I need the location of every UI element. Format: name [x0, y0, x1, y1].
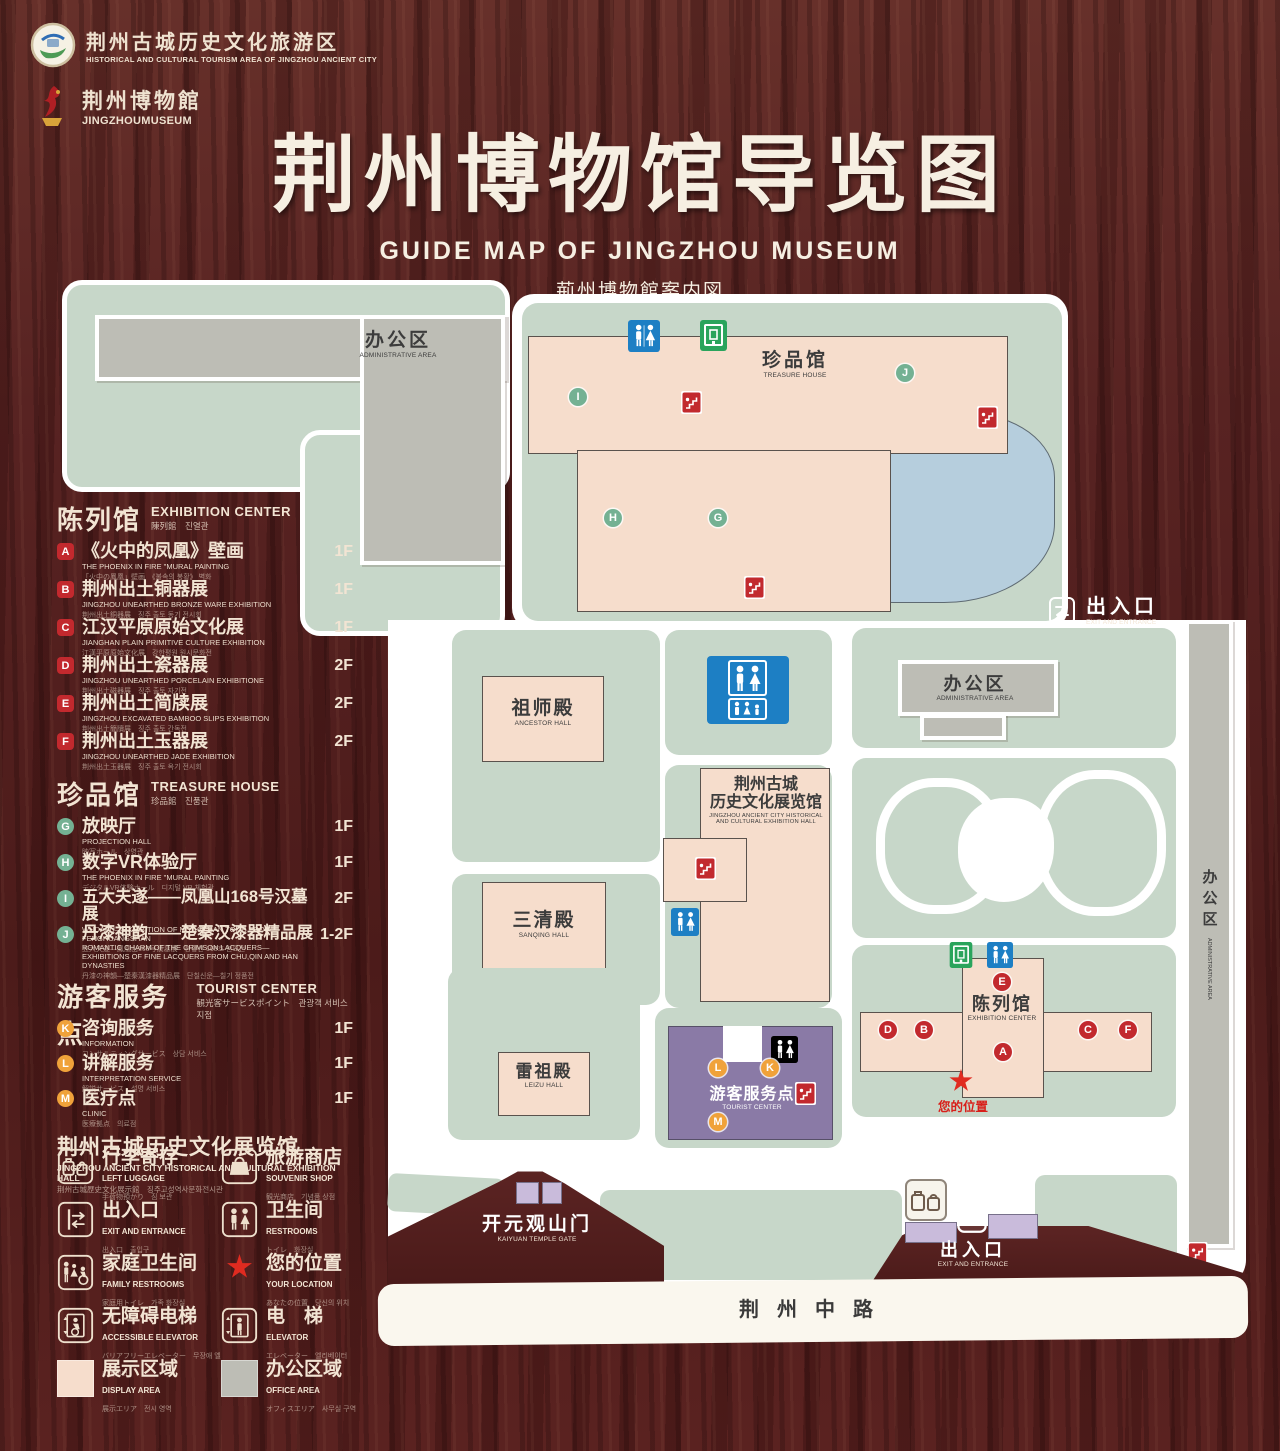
- item-cn: 荆州出土铜器展: [82, 580, 314, 599]
- item-en: THE PHOENIX IN FIRE "MURAL PAINTING: [82, 873, 314, 882]
- restroom-icon: [771, 1036, 798, 1063]
- left-luggage-icon: [57, 1148, 94, 1185]
- item-cn: 讲解服务: [82, 1054, 314, 1073]
- exit-entrance-icon: [57, 1201, 94, 1238]
- admin-area-strip-building: 办公区 ADMINISTRATIVE AREA: [1185, 620, 1233, 1248]
- item-cn: 荆州出土玉器展: [82, 732, 314, 751]
- item-sub: 荆州出土玉器展 징주 출토 옥기 전시회: [82, 762, 314, 772]
- section-tourist-center: 游客服务点 TOURIST CENTER 観光客サービスポイント 관광객 서비스…: [57, 977, 353, 1013]
- floor-badge: 1F: [334, 854, 353, 872]
- key-family-restrooms: 家庭卫生间FAMILY RESTROOMS家庭用トイレ 가족 화장실: [57, 1254, 221, 1294]
- list-item-A: A 《火中的凤凰》壁画THE PHOENIX IN FIRE "MURAL PA…: [57, 542, 353, 579]
- item-en: JIANGHAN PLAIN PRIMITIVE CULTURE EXHIBIT…: [82, 638, 314, 647]
- exit-icon: [948, 942, 974, 968]
- escalator-icon: [977, 406, 998, 429]
- item-cn: 数字VR体验厅: [82, 853, 314, 872]
- map-marker-A: A: [994, 1043, 1012, 1061]
- map-marker-G: G: [709, 509, 727, 527]
- floor-badge: 2F: [334, 733, 353, 751]
- list-item-I: I 五大夫遂——凤凰山168号汉墓展WUDAFU—EXHIBITION OF N…: [57, 889, 353, 924]
- item-cn: 《火中的凤凰》壁画: [82, 542, 314, 561]
- floor-badge: 1F: [334, 619, 353, 637]
- accessible-elevator-icon: [57, 1307, 94, 1344]
- section-title-en: EXHIBITION CENTER: [151, 504, 291, 519]
- item-en: ROMANTIC CHARM OF THE CRIMSON LACQUERS—E…: [82, 943, 314, 970]
- key-label: 出入口: [102, 1200, 159, 1221]
- key-label-sub: エレベーター 엘리베이터: [266, 1353, 347, 1360]
- floor-badge: 1F: [334, 818, 353, 836]
- key-label-en: EXIT AND ENTRANCE: [102, 1227, 186, 1236]
- key-display-area: 展示区域DISPLAY AREA展示エリア 전시 영역: [57, 1360, 221, 1400]
- key-label: 办公区域: [266, 1359, 342, 1380]
- restroom-icon: [671, 906, 699, 938]
- section-title: 珍品馆: [57, 775, 141, 812]
- floor-badge: 1F: [334, 581, 353, 599]
- badge-B: B: [57, 581, 74, 598]
- key-label-sub: 家庭用トイレ 가족 화장실: [102, 1300, 185, 1307]
- item-en: JINGZHOU UNEARTHED PORCELAIN EXHIBITIONE: [82, 676, 314, 685]
- badge-J: J: [57, 926, 74, 943]
- key-label: 电 梯: [266, 1306, 323, 1327]
- map-marker-B: B: [915, 1021, 933, 1039]
- history-hall-label: 荆州古城 历史文化展览馆 JINGZHOU ANCIENT CITY HISTO…: [698, 776, 834, 826]
- key-label: 卫生间: [266, 1200, 323, 1221]
- badge-I: I: [57, 890, 74, 907]
- section-title-sub: 珍品館 진품관: [151, 795, 279, 807]
- escalator-icon: [681, 391, 702, 414]
- badge-K: K: [57, 1020, 74, 1037]
- map-marker-D: D: [879, 1021, 897, 1039]
- restroom-icon: [628, 320, 660, 352]
- admin-area-strip-label: 办公区: [1199, 869, 1220, 932]
- section-exhibition-center: 陈列馆 EXHIBITION CENTER 陳列館 진열관: [57, 500, 353, 536]
- display-area-swatch: [57, 1360, 94, 1397]
- floor-badge: 2F: [334, 695, 353, 713]
- section-treasure-house: 珍品馆 TREASURE HOUSE 珍品館 진품관: [57, 775, 353, 811]
- restrooms-icon: [221, 1201, 258, 1238]
- key-elevator: 电 梯ELEVATORエレベーター 엘리베이터: [221, 1307, 393, 1347]
- key-label-en: DISPLAY AREA: [102, 1386, 160, 1395]
- key-label-en: FAMILY RESTROOMS: [102, 1280, 184, 1289]
- key-exit-entrance: 出入口EXIT AND ENTRANCE出入口 출입구: [57, 1201, 221, 1241]
- office-area-swatch: [221, 1360, 258, 1397]
- badge-E: E: [57, 695, 74, 712]
- list-item-M: M 医疗点CLINIC医療拠点 의료점 1F: [57, 1089, 353, 1123]
- admin-area-east-label: 办公区 ADMINISTRATIVE AREA: [905, 674, 1045, 702]
- key-label: 行李寄存: [102, 1147, 178, 1168]
- entrance-building-south-east: [988, 1214, 1038, 1239]
- item-cn: 咨询服务: [82, 1019, 314, 1038]
- list-item-G: G 放映厅PROJECTION HALL映写ホール 상영관 1F: [57, 817, 353, 852]
- key-label: 您的位置: [266, 1253, 342, 1274]
- item-en: INFORMATION: [82, 1039, 314, 1048]
- item-en: INTERPRETATION SERVICE: [82, 1074, 314, 1083]
- map-marker-J: J: [896, 364, 914, 382]
- key-accessible-elevator: 无障碍电梯ACCESSIBLE ELEVATORバリアフリーエレベーター 무장애…: [57, 1307, 221, 1347]
- key-label-sub: あなたの位置 당신의 위치: [266, 1300, 349, 1307]
- floor-badge: 2F: [334, 890, 353, 908]
- kaiyuan-gate-label: 开元观山门 KAIYUAN TEMPLE GATE: [452, 1214, 622, 1243]
- item-cn: 丹漆神韵——楚秦汉漆器精品展: [82, 925, 314, 942]
- item-en: THE PHOENIX IN FIRE "MURAL PAINTING: [82, 562, 314, 571]
- key-label: 旅游商店: [266, 1147, 342, 1168]
- key-label-sub: 観光商店 기념품 상점: [266, 1194, 335, 1201]
- map-marker-L: L: [709, 1059, 727, 1077]
- kaiyuan-gate-tower-east: [542, 1182, 562, 1204]
- key-label-en: ACCESSIBLE ELEVATOR: [102, 1333, 198, 1342]
- item-en: CLINIC: [82, 1109, 314, 1118]
- escalator-icon: [695, 857, 716, 880]
- admin-area-nw-label: 办公区 ADMINISTRATIVE AREA: [328, 330, 468, 359]
- treasure-house-label: 珍品馆 TREASURE HOUSE: [725, 350, 865, 379]
- restroom-family-icon: [707, 656, 789, 724]
- item-cn: 医疗点: [82, 1089, 314, 1108]
- ancestor-hall-label: 祖师殿 ANCESTOR HALL: [482, 698, 604, 727]
- map-marker-E: E: [993, 973, 1011, 991]
- badge-G: G: [57, 818, 74, 835]
- key-left-luggage: 行李寄存LEFT LUGGAGE手荷物預かり 짐 보관: [57, 1148, 221, 1188]
- badge-L: L: [57, 1055, 74, 1072]
- map-marker-K: K: [761, 1059, 779, 1077]
- your-location-label: 您的位置: [913, 1096, 1013, 1115]
- key-souvenir-shop: 旅游商店SOUVENIR SHOP観光商店 기념품 상점: [221, 1148, 393, 1188]
- list-item-D: D 荆州出土瓷器展JINGZHOU UNEARTHED PORCELAIN EX…: [57, 656, 353, 693]
- item-cn: 五大夫遂——凤凰山168号汉墓展: [82, 889, 314, 924]
- exhibition-center-label: 陈列馆 EXHIBITION CENTER: [932, 994, 1072, 1022]
- key-label-en: OFFICE AREA: [266, 1386, 320, 1395]
- item-sub: 医療拠点 의료점: [82, 1119, 314, 1129]
- floor-badge: 1F: [334, 1090, 353, 1108]
- kaiyuan-gate-tower-west: [516, 1182, 539, 1204]
- list-item-C: C 江汉平原原始文化展JIANGHAN PLAIN PRIMITIVE CULT…: [57, 618, 353, 655]
- item-en: JINGZHOU UNEARTHED JADE EXHIBITION: [82, 752, 314, 761]
- sidebar-legend: 陈列馆 EXHIBITION CENTER 陳列館 진열관 A 《火中的凤凰》壁…: [57, 500, 353, 1195]
- left-luggage-icon: [904, 1178, 948, 1222]
- key-label-sub: トイレ 화장실: [266, 1247, 313, 1254]
- section-title-en: TREASURE HOUSE: [151, 779, 279, 794]
- section-title-sub: 観光客サービスポイント 관광객 서비스 지점: [196, 997, 353, 1021]
- admin-area-east-building-step: [920, 714, 1006, 740]
- item-cn: 荆州出土瓷器展: [82, 656, 314, 675]
- section-title: 陈列馆: [57, 500, 141, 537]
- key-label: 家庭卫生间: [102, 1253, 197, 1274]
- sanqing-hall-label: 三清殿 SANQING HALL: [482, 910, 606, 939]
- key-label-sub: 出入口 출입구: [102, 1247, 149, 1254]
- badge-A: A: [57, 543, 74, 560]
- entrance-arrows-icon: [1048, 596, 1076, 626]
- family-restrooms-icon: [57, 1254, 94, 1291]
- tourist-center-notch: [723, 1026, 762, 1062]
- map-key: 行李寄存LEFT LUGGAGE手荷物預かり 짐 보관 旅游商店SOUVENIR…: [57, 1148, 397, 1400]
- key-label-sub: 展示エリア 전시 영역: [102, 1406, 172, 1413]
- key-office-area: 办公区域OFFICE AREAオフィスエリア 사무실 구역: [221, 1360, 393, 1400]
- floor-badge: 1-2F: [320, 926, 353, 944]
- admin-area-strip-label-en: ADMINISTRATIVE AREA: [1206, 938, 1212, 1000]
- floor-badge: 1F: [334, 1020, 353, 1038]
- floor-badge: 1F: [334, 543, 353, 561]
- list-item-B: B 荆州出土铜器展JINGZHOU UNEARTHED BRONZE WARE …: [57, 580, 353, 617]
- section-title-sub: 陳列館 진열관: [151, 520, 291, 532]
- item-sub: 丹漆の神韻—楚秦漢漆器精品展 단칠신운—칠기 정품전: [82, 971, 314, 981]
- garden-path-east-loop: [1036, 770, 1166, 916]
- item-cn: 放映厅: [82, 817, 314, 836]
- key-label: 无障碍电梯: [102, 1306, 197, 1327]
- souvenir-shop-icon: [221, 1148, 258, 1185]
- badge-C: C: [57, 619, 74, 636]
- section-title-en: TOURIST CENTER: [196, 981, 353, 996]
- key-your-location: 您的位置YOUR LOCATIONあなたの位置 당신의 위치: [221, 1254, 393, 1294]
- key-label-sub: 手荷物預かり 짐 보관: [102, 1194, 172, 1201]
- entrance-arrows-icon: [955, 1200, 989, 1234]
- map-marker-H: H: [604, 509, 622, 527]
- key-label-en: LEFT LUGGAGE: [102, 1174, 165, 1183]
- escalator-icon: [744, 576, 765, 599]
- floor-badge: 2F: [334, 657, 353, 675]
- tourist-center-label: 游客服务点 TOURIST CENTER: [682, 1086, 822, 1112]
- item-en: JINGZHOU EXCAVATED BAMBOO SLIPS EXHIBITI…: [82, 714, 314, 723]
- leizu-hall-label: 雷祖殿 LEIZU HALL: [482, 1062, 606, 1089]
- key-label-en: ELEVATOR: [266, 1333, 308, 1342]
- road-label: 荆州中路: [650, 1293, 980, 1322]
- list-item-F: F 荆州出土玉器展JINGZHOU UNEARTHED JADE EXHIBIT…: [57, 732, 353, 769]
- treasure-house-building-south: [577, 450, 891, 612]
- item-en: JINGZHOU UNEARTHED BRONZE WARE EXHIBITIO…: [82, 600, 314, 609]
- guide-map-poster: 荆州古城历史文化旅游区 HISTORICAL AND CULTURAL TOUR…: [0, 0, 1280, 1451]
- floor-badge: 1F: [334, 1055, 353, 1073]
- elevator-icon: [221, 1307, 258, 1344]
- item-cn: 荆州出土简牍展: [82, 694, 314, 713]
- key-label-en: SOUVENIR SHOP: [266, 1174, 333, 1183]
- restroom-icon: [986, 942, 1014, 968]
- list-item-J: J 丹漆神韵——楚秦汉漆器精品展ROMANTIC CHARM OF THE CR…: [57, 925, 353, 973]
- list-item-H: H 数字VR体验厅THE PHOENIX IN FIRE "MURAL PAIN…: [57, 853, 353, 888]
- key-label-sub: オフィスエリア 사무실 구역: [266, 1406, 356, 1413]
- your-location-star-icon: [221, 1254, 258, 1280]
- exit-south-label: 出入口 EXIT AND ENTRANCE: [903, 1240, 1043, 1268]
- badge-F: F: [57, 733, 74, 750]
- key-label-en: RESTROOMS: [266, 1227, 318, 1236]
- list-item-K: K 咨询服务INFORMATIONコンサルティングサービス 상담 서비스 1F: [57, 1019, 353, 1053]
- map-marker-F: F: [1119, 1021, 1137, 1039]
- badge-D: D: [57, 657, 74, 674]
- badge-H: H: [57, 854, 74, 871]
- map-marker-I: I: [569, 388, 587, 406]
- item-cn: 江汉平原原始文化展: [82, 618, 314, 637]
- list-item-E: E 荆州出土简牍展JINGZHOU EXCAVATED BAMBOO SLIPS…: [57, 694, 353, 731]
- exit-icon: [700, 320, 727, 351]
- list-item-L: L 讲解服务INTERPRETATION SERVICE解説サービス 설명 서비…: [57, 1054, 353, 1088]
- item-en: PROJECTION HALL: [82, 837, 314, 846]
- key-label-en: YOUR LOCATION: [266, 1280, 333, 1289]
- badge-M: M: [57, 1090, 74, 1107]
- key-restrooms: 卫生间RESTROOMSトイレ 화장실: [221, 1201, 393, 1241]
- map-marker-C: C: [1079, 1021, 1097, 1039]
- map-marker-M: M: [709, 1113, 727, 1131]
